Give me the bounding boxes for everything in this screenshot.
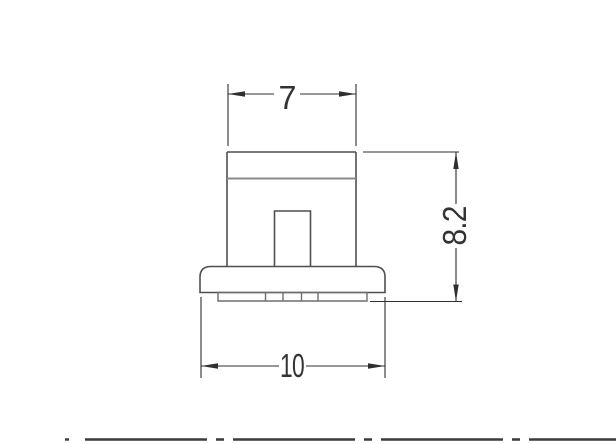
arrowhead-left-icon bbox=[201, 363, 218, 368]
part-base-strip bbox=[218, 293, 367, 302]
dimension-value-overall-height: 8.2 bbox=[436, 207, 473, 246]
arrowhead-up-icon bbox=[453, 152, 458, 169]
arrowhead-left-icon bbox=[228, 91, 245, 96]
dimension-top-width: 7 bbox=[228, 79, 356, 146]
base-strip-outline bbox=[218, 293, 367, 302]
arrowhead-down-icon bbox=[453, 285, 458, 302]
drawing-canvas: 7 8.2 10 bbox=[0, 0, 616, 444]
part-front-view bbox=[200, 152, 385, 301]
part-flange bbox=[200, 267, 385, 293]
part-body bbox=[227, 152, 356, 267]
dimension-value-base-width: 10 bbox=[280, 347, 304, 384]
technical-drawing: 7 8.2 10 bbox=[0, 0, 616, 444]
part-center-notch bbox=[275, 211, 311, 267]
dimension-value-top-width: 7 bbox=[279, 79, 296, 116]
arrowhead-right-icon bbox=[368, 363, 385, 368]
dimension-overall-height: 8.2 bbox=[363, 152, 473, 302]
arrowhead-right-icon bbox=[339, 91, 356, 96]
dimension-base-width: 10 bbox=[201, 297, 385, 384]
